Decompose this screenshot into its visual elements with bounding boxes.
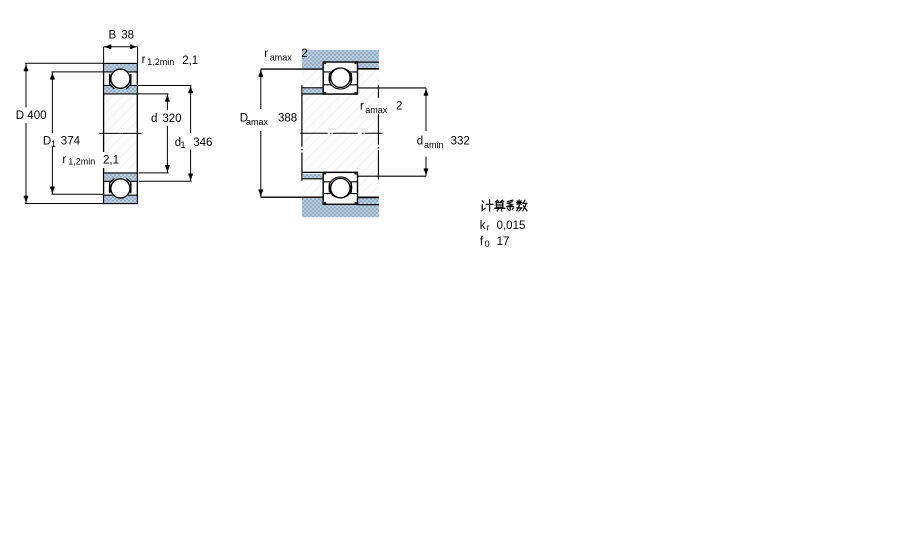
svg-text:38: 38 <box>121 29 134 41</box>
svg-text:374: 374 <box>61 135 81 147</box>
svg-text:r: r <box>360 100 364 112</box>
svg-text:r: r <box>142 54 146 66</box>
svg-text:D: D <box>43 135 51 147</box>
svg-text:0: 0 <box>485 239 490 249</box>
svg-text:f: f <box>480 236 484 248</box>
svg-text:332: 332 <box>451 136 470 148</box>
svg-text:17: 17 <box>497 236 510 248</box>
svg-text:2: 2 <box>396 100 402 112</box>
svg-text:amax: amax <box>246 117 269 127</box>
svg-text:0,015: 0,015 <box>497 220 526 232</box>
svg-text:320: 320 <box>162 113 181 125</box>
svg-text:k: k <box>480 220 486 232</box>
svg-text:d: d <box>417 135 423 147</box>
svg-text:amin: amin <box>424 140 444 150</box>
svg-text:1: 1 <box>51 139 56 149</box>
svg-text:2: 2 <box>301 48 307 60</box>
svg-text:388: 388 <box>278 112 297 124</box>
svg-text:1,2min: 1,2min <box>68 157 95 167</box>
svg-text:r: r <box>62 154 66 166</box>
svg-text:1: 1 <box>181 140 186 150</box>
svg-text:r: r <box>264 48 268 60</box>
svg-text:r: r <box>487 223 490 233</box>
svg-text:B: B <box>109 29 117 41</box>
svg-text:D 400: D 400 <box>16 110 47 122</box>
svg-text:346: 346 <box>193 137 212 149</box>
svg-text:amax: amax <box>365 105 388 115</box>
svg-text:d: d <box>151 113 157 125</box>
svg-text:1,2min: 1,2min <box>147 57 174 67</box>
svg-text:2,1: 2,1 <box>182 55 198 67</box>
svg-text:2,1: 2,1 <box>103 154 119 166</box>
svg-text:amax: amax <box>270 52 293 62</box>
